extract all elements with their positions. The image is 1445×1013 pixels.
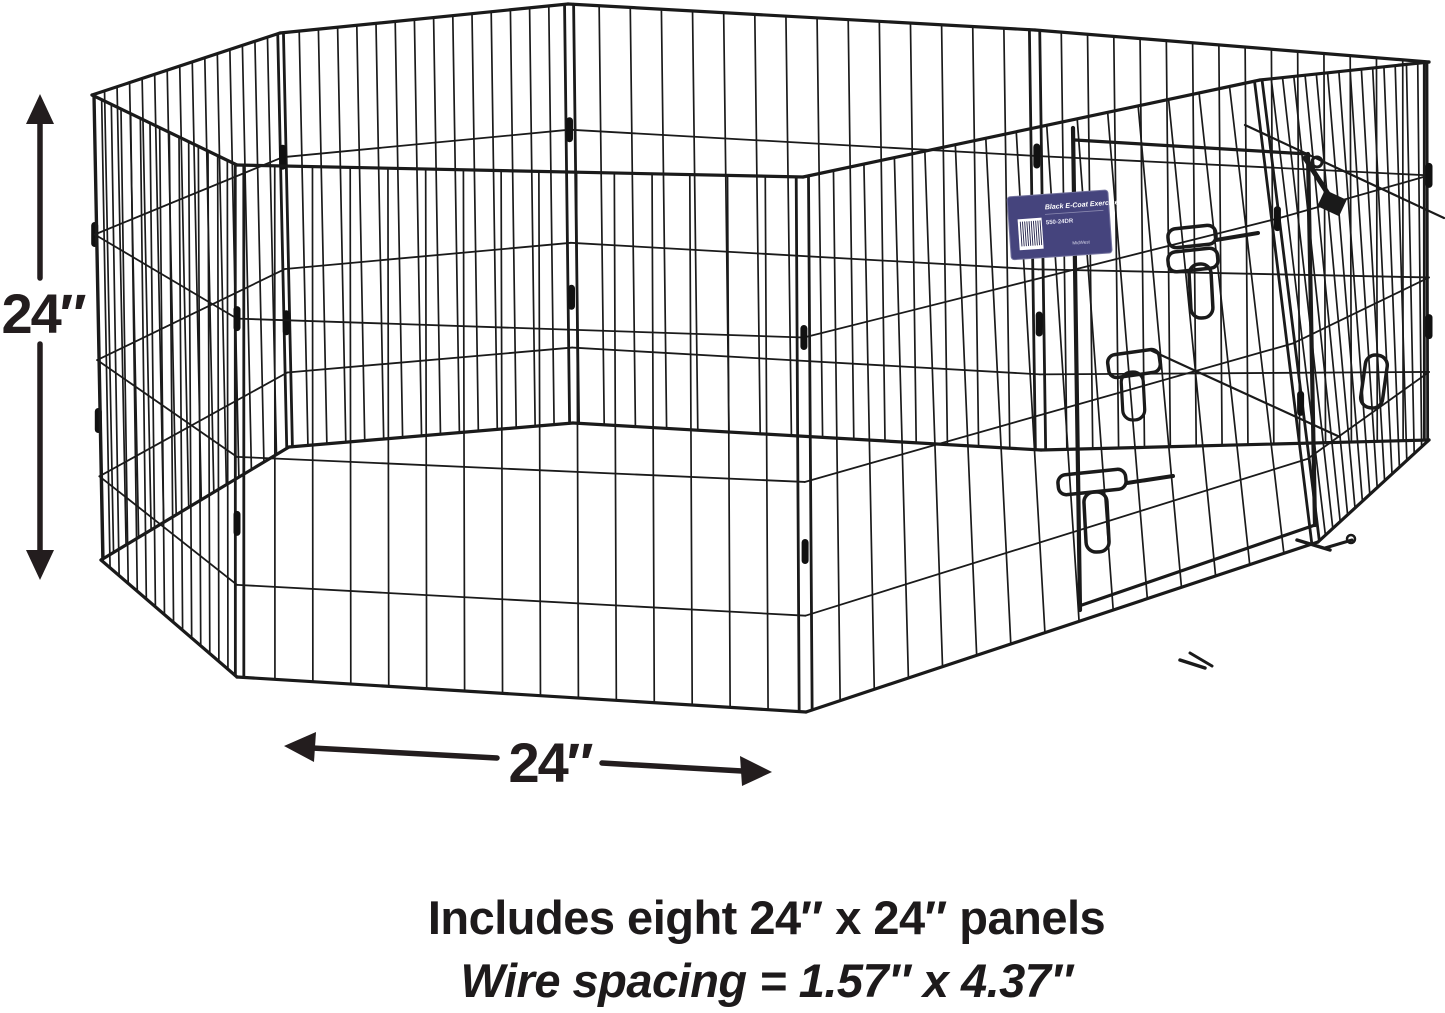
- caption-block: Includes eight 24″ x 24″ panels Wire spa…: [0, 890, 1445, 1008]
- pen-product-diagram: Black E-Coat Exercise Pen 550-24DR MidWe…: [0, 0, 1445, 1013]
- caption-line-1: Includes eight 24″ x 24″ panels: [88, 890, 1445, 945]
- caption-line-2: Wire spacing = 1.57″ x 4.37″: [88, 953, 1445, 1008]
- pen-illustration: Black E-Coat Exercise Pen 550-24DR MidWe…: [0, 0, 1445, 1013]
- height-dimension-label: 24″: [0, 286, 86, 342]
- wire-pen-panels: [92, 4, 1429, 712]
- width-dimension-label: 24″: [498, 735, 602, 791]
